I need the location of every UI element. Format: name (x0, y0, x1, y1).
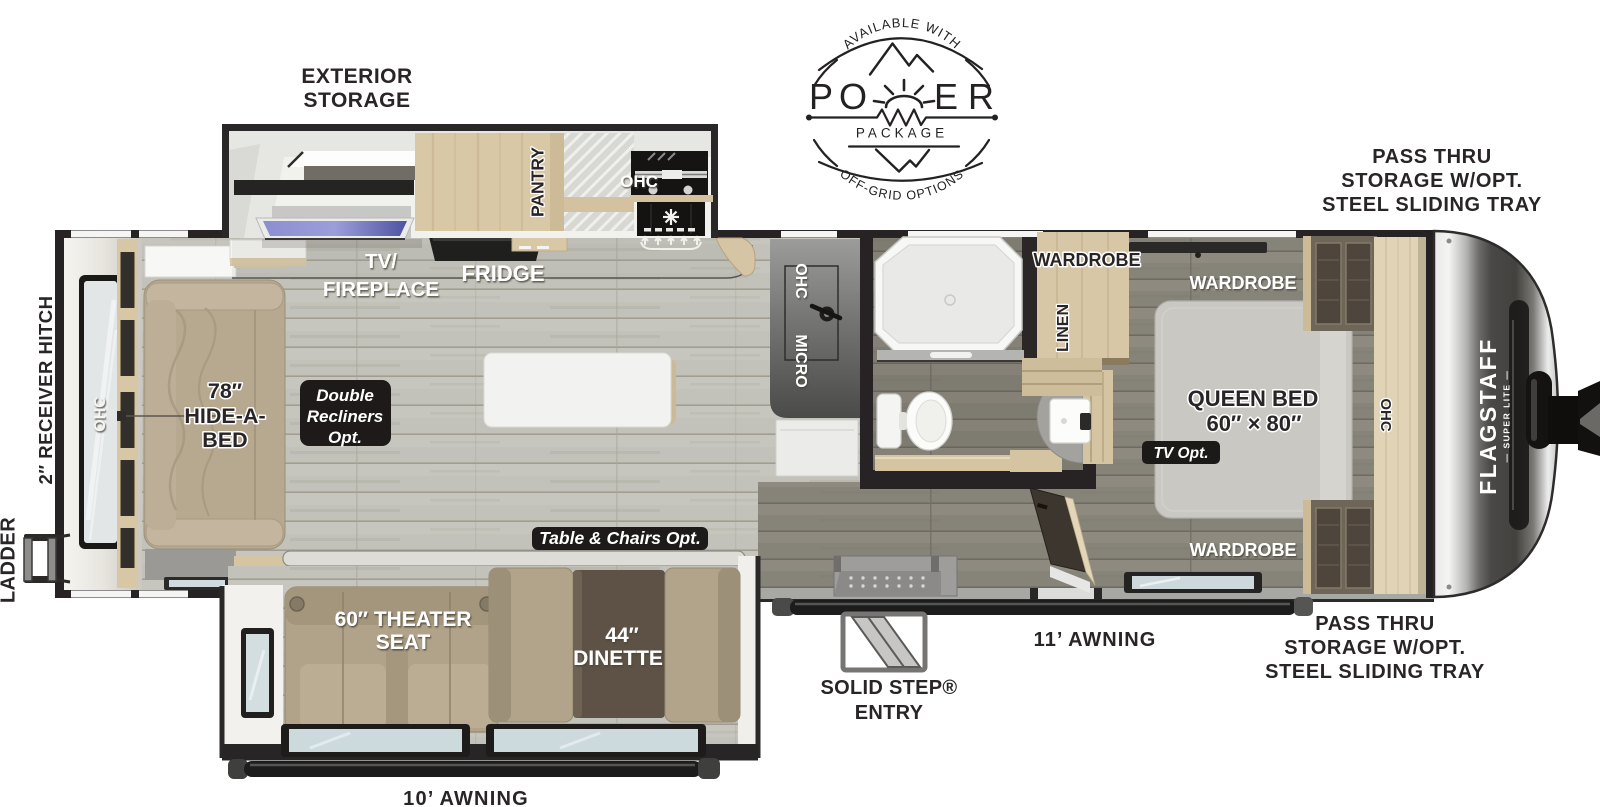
svg-text:E: E (934, 76, 958, 117)
svg-text:OHC: OHC (1377, 398, 1394, 432)
svg-text:60″ × 80″: 60″ × 80″ (1206, 411, 1302, 436)
svg-text:— SUPER LITE —: — SUPER LITE — (1501, 370, 1511, 463)
svg-text:PANTRY: PANTRY (528, 147, 548, 217)
svg-text:78″: 78″ (208, 379, 242, 403)
svg-text:OHC: OHC (792, 263, 809, 299)
svg-text:MICRO: MICRO (792, 334, 809, 387)
svg-text:FLAGSTAFF: FLAGSTAFF (1475, 337, 1501, 495)
svg-text:BED: BED (202, 428, 247, 452)
svg-text:QUEEN BED: QUEEN BED (1188, 386, 1319, 411)
svg-text:FRIDGE: FRIDGE (461, 261, 544, 286)
svg-text:SEAT: SEAT (376, 631, 431, 654)
svg-text:10’ AWNING: 10’ AWNING (403, 788, 529, 807)
svg-text:SOLID STEP®: SOLID STEP® (821, 677, 958, 699)
svg-text:P: P (809, 76, 833, 117)
svg-text:EXTERIOR: EXTERIOR (301, 65, 412, 88)
svg-text:DINETTE: DINETTE (573, 647, 663, 670)
svg-text:2″ RECEIVER HITCH: 2″ RECEIVER HITCH (35, 295, 56, 484)
svg-text:PACKAGE: PACKAGE (856, 126, 948, 141)
svg-text:Recliners: Recliners (307, 407, 384, 426)
svg-text:OHC: OHC (92, 396, 109, 432)
svg-text:Opt.: Opt. (328, 428, 362, 447)
svg-text:Table & Chairs Opt.: Table & Chairs Opt. (539, 528, 701, 548)
svg-text:TV Opt.: TV Opt. (1153, 445, 1208, 462)
svg-text:ENTRY: ENTRY (855, 702, 924, 724)
svg-text:PASS THRU: PASS THRU (1315, 613, 1434, 635)
svg-text:HIDE-A-: HIDE-A- (184, 404, 265, 428)
svg-text:LADDER: LADDER (0, 517, 19, 603)
svg-text:WARDROBE: WARDROBE (1034, 250, 1141, 270)
svg-text:11’ AWNING: 11’ AWNING (1034, 629, 1157, 651)
svg-text:LINEN: LINEN (1055, 304, 1072, 352)
svg-text:44″: 44″ (605, 624, 638, 647)
svg-text:Double: Double (316, 386, 374, 405)
svg-text:WARDROBE: WARDROBE (1190, 273, 1297, 293)
svg-text:FIREPLACE: FIREPLACE (323, 278, 439, 301)
svg-text:STEEL SLIDING TRAY: STEEL SLIDING TRAY (1322, 194, 1542, 216)
svg-text:STORAGE W/OPT.: STORAGE W/OPT. (1284, 637, 1465, 659)
svg-text:WARDROBE: WARDROBE (1190, 540, 1297, 560)
svg-text:STORAGE W/OPT.: STORAGE W/OPT. (1341, 170, 1522, 192)
svg-text:PASS THRU: PASS THRU (1372, 146, 1491, 168)
svg-text:STORAGE: STORAGE (304, 89, 411, 112)
svg-text:OHC: OHC (620, 172, 658, 191)
svg-text:TV/: TV/ (365, 250, 397, 273)
svg-text:60″ THEATER: 60″ THEATER (335, 608, 472, 631)
svg-text:STEEL SLIDING TRAY: STEEL SLIDING TRAY (1265, 661, 1485, 683)
svg-text:R: R (968, 76, 994, 117)
svg-text:O: O (839, 76, 867, 117)
